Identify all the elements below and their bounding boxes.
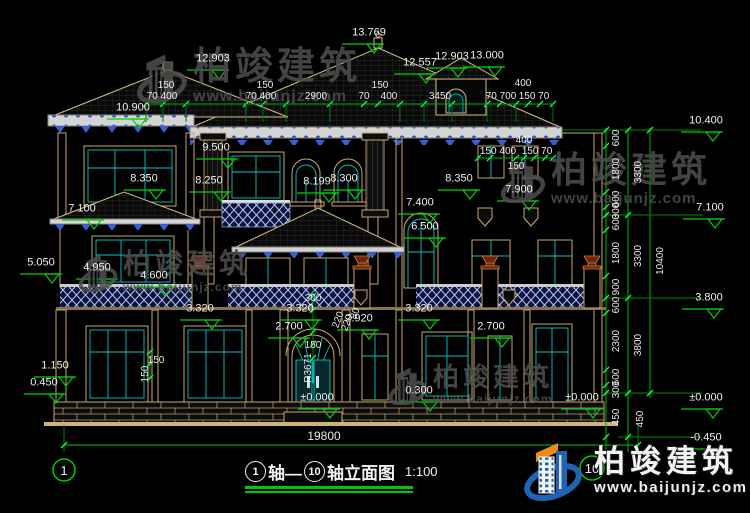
axis-bubble-1: 1	[53, 459, 75, 481]
logo-brand-text: 柏竣建筑	[594, 446, 747, 479]
elevation-label: 9.500	[202, 143, 230, 154]
brand-logo: 柏竣建筑 www.baijunjz.com	[524, 438, 747, 504]
watermark-url: www.baijunjz.com	[123, 280, 251, 294]
dimension-label: 400	[515, 79, 532, 89]
dimension-label: 450	[612, 409, 622, 426]
dimension-label: 150	[158, 81, 175, 91]
elevation-label: 12.557	[403, 58, 437, 69]
elevation-label: 7.400	[406, 198, 434, 209]
watermark-brand: 柏竣建筑	[433, 364, 553, 390]
dimension-label: 600	[612, 130, 622, 147]
elevation-label: 8.199	[303, 177, 331, 188]
dimension-label: R3671	[304, 353, 314, 382]
dimension-label: 2300	[612, 330, 622, 352]
watermark: 柏竣建筑 www.baijunjz.com	[500, 152, 711, 207]
watermark-url: www.baijunjz.com	[193, 88, 361, 106]
dimension-label: 19800	[307, 430, 340, 442]
dimension-label: 150	[372, 81, 389, 91]
dimension-label: 70 700	[486, 92, 517, 102]
dimension-label: 3450	[429, 92, 451, 102]
elevation-label: 4.600	[140, 271, 168, 282]
dimension-label: 900	[612, 279, 622, 296]
elevation-label: 2.920	[345, 314, 373, 325]
dimension-label: 1800	[612, 158, 622, 180]
dimension-label: 3800	[634, 334, 644, 356]
elevation-label: 8.250	[195, 176, 223, 187]
drawing-title: 1 轴— 10 轴立面图 1:100	[245, 459, 438, 484]
elevation-label: ±0.000	[565, 393, 599, 404]
elevation-label: 7.100	[68, 204, 96, 215]
dimension-label: 70 400	[246, 92, 277, 102]
scale-label: 1:100	[405, 464, 438, 479]
elevation-label: 3.320	[186, 304, 214, 315]
elevation-label: 6.500	[411, 222, 439, 233]
dimension-label: 150	[257, 81, 274, 91]
elevation-label: 7.900	[505, 185, 533, 196]
dimension-label: 150 70	[522, 147, 553, 157]
dimension-label: 400	[516, 136, 533, 146]
dimension-label: 70	[358, 92, 369, 102]
elevation-label: 12.903	[435, 52, 469, 63]
elevation-label: ±0.000	[689, 393, 723, 404]
elevation-label: 4.950	[83, 263, 111, 274]
dimension-label: 150 400	[480, 147, 516, 157]
elevation-label: 10.900	[116, 103, 150, 114]
dimension-label: 600	[612, 214, 622, 231]
dimension-label: 400	[381, 92, 398, 102]
cad-elevation-screenshot: 柏竣建筑 www.baijunjz.com 柏竣建筑 www.baijunjz.…	[0, 0, 750, 513]
elevation-label: 8.350	[445, 174, 473, 185]
elevation-label: 3.320	[286, 304, 314, 315]
elevation-label: 1.150	[41, 361, 69, 372]
elevation-label: 7.100	[696, 203, 724, 214]
title-underline	[245, 491, 413, 493]
elevation-label: 3.800	[695, 293, 723, 304]
logo-url-text: www.baijunjz.com	[594, 479, 747, 496]
title-suffix: 轴立面图	[327, 459, 395, 484]
dimension-label: 3300	[634, 245, 644, 267]
title-axis-mid: 轴—	[268, 459, 302, 484]
dimension-label: 300	[612, 382, 622, 399]
elevation-label: 2.700	[477, 322, 505, 333]
elevation-label: 8.300	[330, 174, 358, 185]
elevation-label: 12.903	[196, 54, 230, 65]
dimension-label: 600	[612, 297, 622, 314]
watermark-brand: 柏竣建筑	[551, 152, 711, 188]
dimension-label: 150	[141, 366, 151, 383]
elevation-label: 5.050	[27, 258, 55, 269]
elevation-label: 3.320	[405, 304, 433, 315]
elevation-label: 2.700	[275, 322, 303, 333]
elevation-label: 0.450	[30, 378, 58, 389]
dimension-label: 150	[305, 341, 322, 351]
dimension-label: 10400	[656, 247, 666, 275]
elevation-label: 0.300	[405, 386, 433, 397]
dimension-label: 450	[636, 411, 646, 428]
elevation-label: 13.769	[352, 28, 386, 39]
dimension-label: 70 400	[147, 92, 178, 102]
dimension-label: 2900	[305, 92, 327, 102]
elevation-label: 13.000	[470, 51, 504, 62]
elevation-label: 10.400	[689, 116, 723, 127]
elevation-label: 8.350	[130, 174, 158, 185]
brand-logo-icon	[524, 438, 588, 504]
watermark-url: www.baijunjz.com	[433, 392, 553, 406]
elevation-label: ±0.000	[300, 393, 334, 404]
title-axis-end: 10	[304, 461, 325, 482]
dimension-label: 150 70	[519, 92, 550, 102]
dimension-label: 3300	[634, 161, 644, 183]
title-axis-start: 1	[245, 461, 266, 482]
watermark-url: www.baijunjz.com	[551, 190, 711, 207]
title-underline	[245, 486, 413, 489]
dimension-label: 1800	[612, 242, 622, 264]
dimension-label: 150	[508, 162, 525, 172]
